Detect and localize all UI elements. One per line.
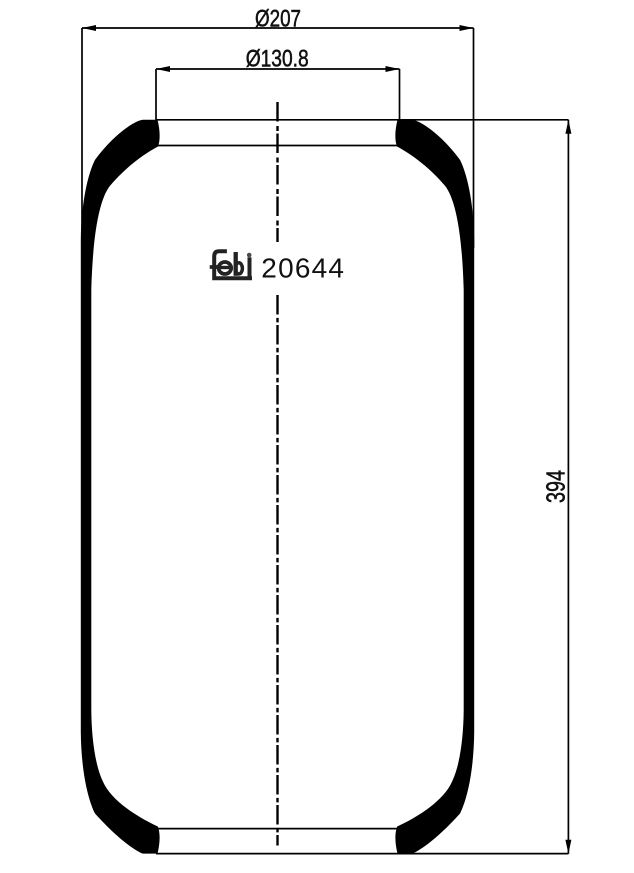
svg-text:Ø207: Ø207 <box>255 6 301 33</box>
svg-text:20644: 20644 <box>261 252 345 283</box>
svg-text:Ø130.8: Ø130.8 <box>246 46 309 73</box>
svg-text:394: 394 <box>541 470 571 503</box>
